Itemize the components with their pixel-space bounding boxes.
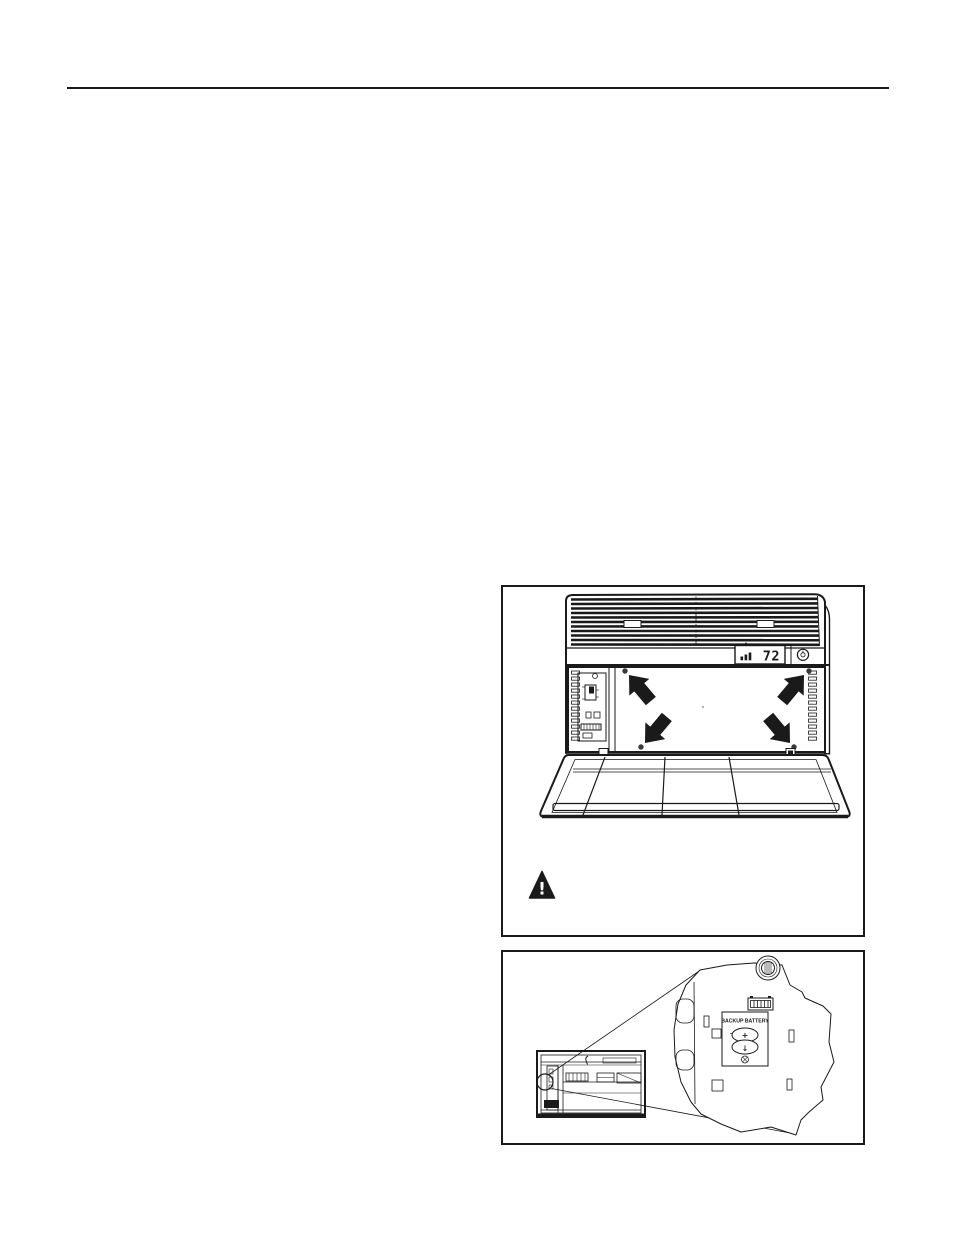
battery-positive-symbol: + <box>742 1031 749 1040</box>
grille-removal-drawing: 72 <box>503 587 863 935</box>
manual-page: 72 <box>0 0 954 1235</box>
temperature-display: 72 <box>735 643 785 665</box>
screw-dot-icon <box>622 668 627 673</box>
front-panel-open <box>540 755 849 817</box>
mounting-screw-head-icon <box>756 956 780 980</box>
coin-battery-bottom: ↓ <box>732 1040 758 1054</box>
louver-notch <box>624 621 641 628</box>
figure-grille-removal: 72 <box>501 585 865 937</box>
battery-insert-symbol: ↓ <box>742 1044 748 1053</box>
power-button-icon <box>797 649 808 660</box>
warning-triangle-icon: ! <box>530 872 555 900</box>
rear-panel-blob: BACKUP BATTERY + ↓ <box>674 956 834 1135</box>
louver-grille <box>566 596 826 648</box>
center-mark <box>702 706 704 708</box>
screw-dot-icon <box>638 744 643 749</box>
right-vent-slots <box>809 671 817 740</box>
warning-glyph: ! <box>538 880 546 900</box>
page-header-rule <box>67 87 889 89</box>
louver-notch <box>757 621 774 628</box>
backup-battery-drawing: BACKUP BATTERY + ↓ <box>503 952 863 1143</box>
temperature-readout: 72 <box>763 649 780 665</box>
chassis-open-area <box>568 667 825 752</box>
mini-unit-black-module <box>544 1100 559 1108</box>
control-board <box>578 673 606 741</box>
mini-unit-front-view <box>537 1051 645 1117</box>
figure-backup-battery: BACKUP BATTERY + ↓ <box>501 950 865 1145</box>
screw-dot-icon <box>806 668 811 673</box>
battery-compartment-label: BACKUP BATTERY <box>721 1019 769 1025</box>
